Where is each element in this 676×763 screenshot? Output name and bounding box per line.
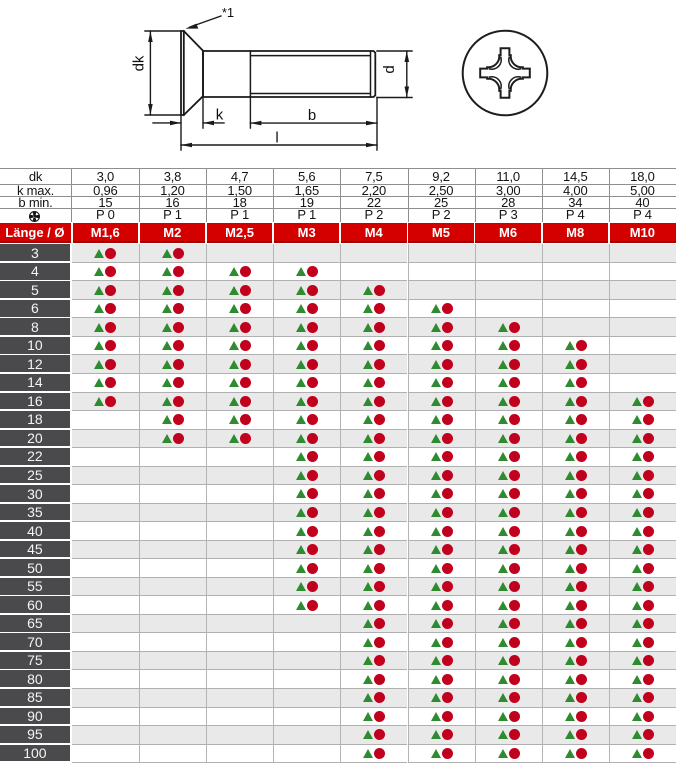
svg-text:l: l — [275, 130, 278, 147]
svg-text:d: d — [381, 65, 398, 73]
svg-text:dk: dk — [131, 55, 148, 71]
svg-text:*1: *1 — [222, 5, 234, 20]
svg-text:k: k — [216, 107, 224, 124]
svg-text:b: b — [308, 107, 316, 124]
